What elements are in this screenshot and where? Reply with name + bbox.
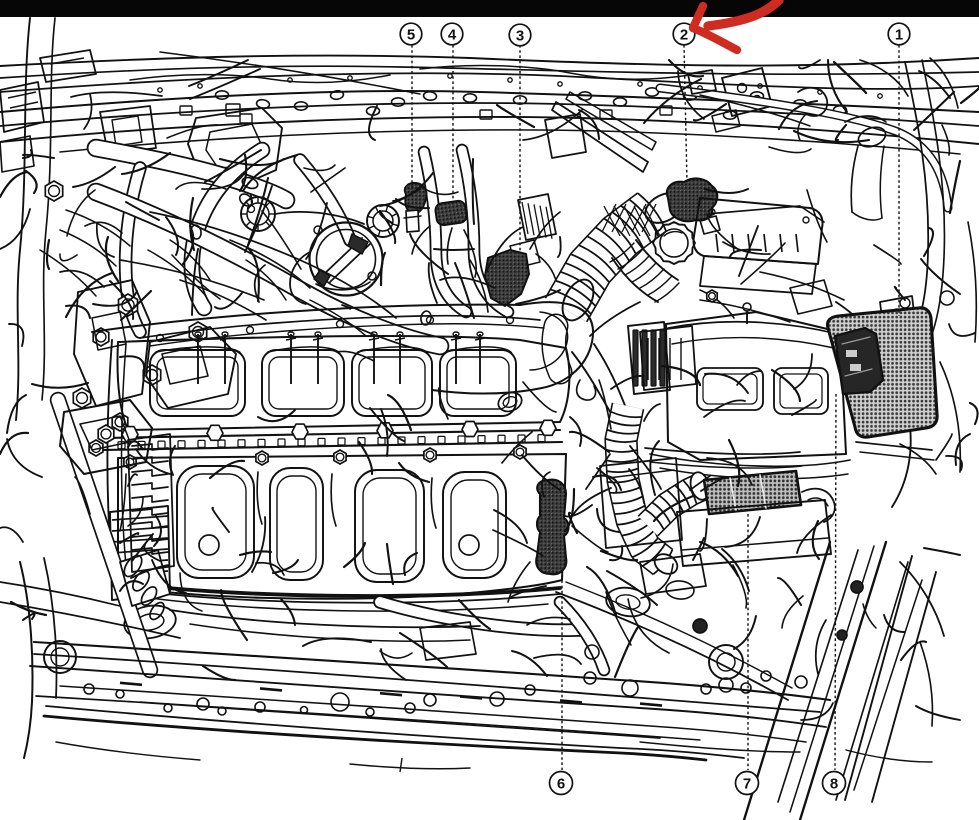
svg-text:4: 4: [448, 26, 457, 43]
svg-text:6: 6: [557, 775, 565, 792]
svg-text:5: 5: [407, 26, 415, 43]
svg-text:2: 2: [680, 26, 688, 43]
svg-text:7: 7: [743, 775, 751, 792]
svg-text:8: 8: [830, 775, 838, 792]
svg-text:3: 3: [516, 27, 524, 44]
svg-text:1: 1: [895, 26, 903, 43]
